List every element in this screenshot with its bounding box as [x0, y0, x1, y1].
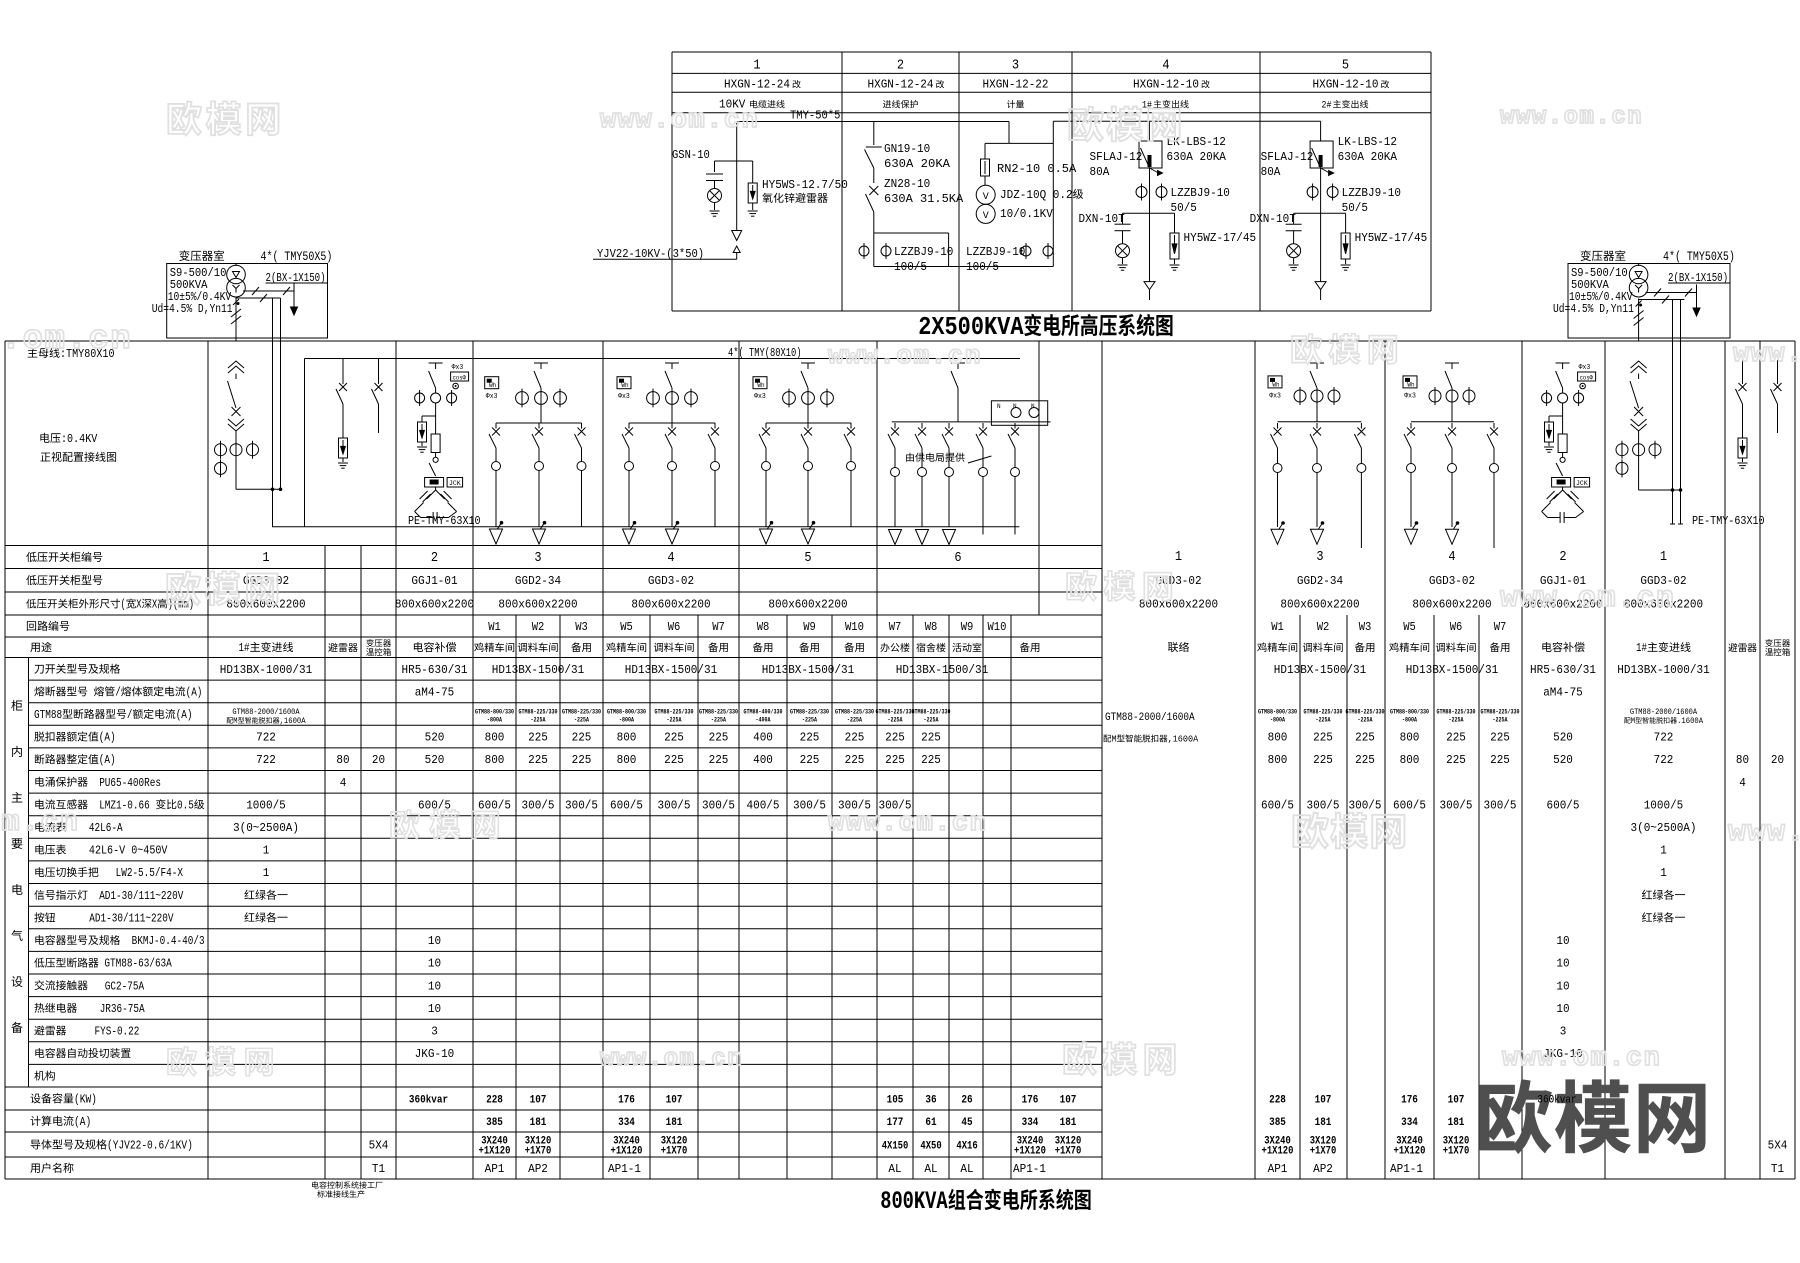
svg-text:10: 10	[428, 1002, 441, 1016]
svg-text:385: 385	[1269, 1117, 1286, 1129]
svg-text:Φx3: Φx3	[452, 364, 464, 372]
svg-text:0.5: 0.5	[177, 798, 194, 812]
svg-text:800x600x2200: 800x600x2200	[1139, 598, 1218, 612]
svg-text:GC2-75A: GC2-75A	[105, 979, 145, 993]
svg-text:W8: W8	[757, 620, 770, 634]
svg-text:2#: 2#	[1322, 101, 1332, 112]
svg-text:3: 3	[1012, 59, 1019, 74]
svg-text:107: 107	[530, 1095, 547, 1107]
svg-text:+1X120: +1X120	[1014, 1146, 1046, 1158]
svg-text:105: 105	[887, 1095, 904, 1107]
svg-text:HXGN-12-10: HXGN-12-10	[1133, 78, 1199, 92]
svg-text:300/5: 300/5	[702, 798, 735, 812]
svg-text:W3: W3	[1359, 620, 1372, 634]
svg-text:V: V	[983, 192, 989, 203]
svg-text:800x600x2200: 800x600x2200	[498, 598, 577, 612]
svg-text:N: N	[1031, 403, 1035, 410]
svg-text:T1: T1	[1771, 1162, 1784, 1176]
svg-text:www.om.cn: www.om.cn	[600, 106, 759, 136]
svg-text:HXGN-12-22: HXGN-12-22	[983, 78, 1049, 92]
svg-text:176: 176	[1401, 1095, 1418, 1107]
svg-text:Φx3: Φx3	[1404, 392, 1416, 400]
svg-text:181: 181	[530, 1117, 547, 1129]
svg-text:20: 20	[1771, 753, 1784, 767]
svg-text:GTM88-225/330: GTM88-225/330	[1304, 709, 1343, 717]
svg-text:722: 722	[256, 731, 276, 745]
svg-text:,1600A: ,1600A	[280, 718, 306, 726]
svg-text:6: 6	[954, 551, 961, 566]
svg-text:225: 225	[800, 753, 820, 767]
svg-text:Wh: Wh	[1272, 381, 1280, 388]
svg-text:BKMJ-0.4-40/3: BKMJ-0.4-40/3	[132, 934, 205, 948]
svg-text:225: 225	[885, 731, 905, 745]
svg-text:-225A: -225A	[1493, 717, 1509, 725]
svg-text:630A 20KA: 630A 20KA	[884, 157, 951, 171]
svg-text:FYS-0.22: FYS-0.22	[95, 1025, 140, 1039]
svg-text:V: V	[983, 211, 989, 222]
svg-text:+1X120: +1X120	[479, 1146, 511, 1158]
svg-text:600/5: 600/5	[610, 798, 643, 812]
svg-text:300/5: 300/5	[565, 798, 598, 812]
svg-text:630A 31.5KA: 630A 31.5KA	[884, 192, 964, 206]
svg-text:800x600x2200: 800x600x2200	[768, 598, 847, 612]
svg-text:225: 225	[1355, 753, 1375, 767]
svg-text:722: 722	[1654, 753, 1674, 767]
svg-text:AP1: AP1	[485, 1162, 505, 1176]
svg-text:4X150: 4X150	[882, 1141, 909, 1153]
svg-text:LMZ1-0.66: LMZ1-0.66	[99, 798, 150, 812]
svg-text:AL: AL	[924, 1162, 937, 1176]
svg-text:100/5: 100/5	[894, 260, 927, 274]
svg-text:45: 45	[961, 1117, 972, 1129]
svg-text:4: 4	[667, 551, 674, 566]
svg-text:107: 107	[666, 1095, 683, 1107]
svg-text:3: 3	[1316, 550, 1323, 565]
svg-text:LZZBJ9-10: LZZBJ9-10	[966, 245, 1025, 259]
svg-text:300/5: 300/5	[1307, 798, 1340, 812]
svg-text:AP1-1: AP1-1	[608, 1162, 641, 1176]
svg-text:-800A: -800A	[1270, 717, 1286, 725]
svg-text:+1X70: +1X70	[661, 1146, 688, 1158]
svg-text:177: 177	[887, 1117, 904, 1129]
svg-text:-225A: -225A	[802, 717, 818, 725]
svg-text:X: X	[136, 598, 141, 612]
svg-text:225: 225	[572, 731, 592, 745]
svg-text:181: 181	[1448, 1117, 1465, 1129]
svg-text:AP1-1: AP1-1	[1390, 1162, 1423, 1176]
svg-text:GGD3-02: GGD3-02	[1429, 574, 1475, 588]
svg-text:AP1-1: AP1-1	[1013, 1162, 1046, 1176]
svg-text:-225A: -225A	[924, 717, 940, 725]
svg-text:www.om.cn: www.om.cn	[1502, 1044, 1661, 1074]
svg-text:LZZBJ9-10: LZZBJ9-10	[894, 245, 953, 259]
svg-text:(A): (A)	[99, 753, 116, 767]
svg-text:225: 225	[709, 731, 729, 745]
svg-text:520: 520	[425, 731, 445, 745]
svg-text:225: 225	[664, 753, 684, 767]
svg-text:10: 10	[428, 979, 441, 993]
svg-text:3: 3	[534, 551, 541, 566]
svg-text:GTM88: GTM88	[34, 708, 62, 722]
svg-text:+1X120: +1X120	[1394, 1146, 1426, 1158]
svg-text:181: 181	[1060, 1117, 1077, 1129]
svg-text:1: 1	[1660, 866, 1667, 880]
svg-text:Wh: Wh	[621, 382, 629, 389]
svg-text:GGD3-02: GGD3-02	[648, 574, 694, 588]
svg-text:225: 225	[1313, 753, 1333, 767]
svg-text:GGD2-34: GGD2-34	[1297, 574, 1343, 588]
svg-text:1: 1	[263, 844, 270, 858]
svg-text:520: 520	[1553, 731, 1573, 745]
svg-text:520: 520	[425, 753, 445, 767]
svg-text:GTM88-225/330: GTM88-225/330	[1346, 709, 1385, 717]
svg-text:SFLAJ-12: SFLAJ-12	[1090, 150, 1143, 164]
svg-text:AP2: AP2	[528, 1162, 548, 1176]
svg-text:-800A: -800A	[1402, 717, 1418, 725]
svg-text:36: 36	[925, 1095, 936, 1107]
svg-text:100/5: 100/5	[966, 260, 999, 274]
svg-text:800: 800	[485, 731, 505, 745]
svg-text:Ud=4.5% D,Yn11: Ud=4.5% D,Yn11	[1553, 302, 1634, 316]
svg-text:T1: T1	[372, 1162, 385, 1176]
svg-text:225: 225	[800, 731, 820, 745]
svg-text:-225A: -225A	[888, 717, 904, 725]
svg-text:AL: AL	[888, 1162, 901, 1176]
svg-text:225: 225	[528, 753, 548, 767]
svg-text:GN19-10: GN19-10	[884, 142, 930, 156]
svg-text:600/5: 600/5	[1393, 798, 1426, 812]
svg-text:600/5: 600/5	[1261, 798, 1294, 812]
svg-text:300/5: 300/5	[1484, 798, 1517, 812]
svg-text:(YJV22-0.6/1KV): (YJV22-0.6/1KV)	[107, 1139, 193, 1153]
svg-text:(KW): (KW)	[74, 1093, 97, 1107]
svg-text:+1X70: +1X70	[1310, 1146, 1337, 1158]
svg-text:-225A: -225A	[574, 717, 590, 725]
svg-text:HD13BX-1500/31: HD13BX-1500/31	[492, 663, 584, 677]
svg-text:HD13BX-1500/31: HD13BX-1500/31	[625, 663, 717, 677]
svg-text:GTM88-800/330: GTM88-800/330	[607, 709, 646, 717]
svg-text:(A): (A)	[99, 731, 116, 745]
svg-text:GSN-10: GSN-10	[672, 148, 710, 162]
svg-text:,1600A: ,1600A	[1168, 734, 1199, 745]
svg-text:/: /	[127, 708, 133, 722]
svg-text:225: 225	[921, 731, 941, 745]
svg-text:M: M	[1631, 718, 1636, 726]
svg-text:www.om.cn: www.om.cn	[0, 806, 80, 840]
svg-text:HXGN-12-24: HXGN-12-24	[724, 78, 790, 92]
svg-text:1: 1	[263, 866, 270, 880]
svg-text:800: 800	[1268, 731, 1288, 745]
svg-text:176: 176	[1022, 1095, 1039, 1107]
svg-text:4*( TMY50X5): 4*( TMY50X5)	[261, 249, 333, 264]
svg-text:225: 225	[1446, 753, 1466, 767]
svg-text:W2: W2	[1317, 620, 1330, 634]
svg-text:GTM88-225/330: GTM88-225/330	[835, 709, 874, 717]
svg-text:GTM88-800/330: GTM88-800/330	[475, 709, 514, 717]
svg-text:TMY-50*5: TMY-50*5	[790, 109, 840, 123]
svg-text:+1X70: +1X70	[1055, 1146, 1082, 1158]
svg-text:10: 10	[1556, 957, 1569, 971]
svg-text:+1X120: +1X120	[611, 1146, 643, 1158]
svg-text:225: 225	[845, 753, 865, 767]
svg-text:GGD2-34: GGD2-34	[515, 574, 561, 588]
svg-text:1: 1	[262, 551, 269, 566]
svg-text:600/5: 600/5	[478, 798, 511, 812]
svg-text:225: 225	[885, 753, 905, 767]
svg-text:1: 1	[753, 59, 760, 74]
svg-text:10: 10	[1556, 1002, 1569, 1016]
svg-text:HD13BX-1000/31: HD13BX-1000/31	[220, 663, 312, 677]
svg-text:Wh: Wh	[489, 382, 497, 389]
svg-text:400/5: 400/5	[747, 798, 780, 812]
svg-text:JCK: JCK	[449, 480, 461, 487]
svg-text:722: 722	[1654, 731, 1674, 745]
svg-text:300/5: 300/5	[522, 798, 555, 812]
svg-text:800x600x2200: 800x600x2200	[1280, 598, 1359, 612]
svg-text:M: M	[233, 718, 238, 726]
svg-text:3: 3	[431, 1025, 438, 1039]
svg-text:JKG-10: JKG-10	[415, 1047, 455, 1061]
svg-text:www.om.cn: www.om.cn	[828, 809, 987, 839]
svg-text:Φx3: Φx3	[618, 393, 630, 401]
svg-text:1: 1	[1660, 550, 1667, 565]
svg-text:26: 26	[961, 1095, 972, 1107]
svg-text:400: 400	[753, 753, 773, 767]
svg-text:107: 107	[1060, 1095, 1077, 1107]
svg-text:225: 225	[528, 731, 548, 745]
svg-text:300/5: 300/5	[1349, 798, 1382, 812]
svg-text:800x600x2200: 800x600x2200	[1412, 598, 1491, 612]
svg-text:GTM88-225/330: GTM88-225/330	[655, 709, 694, 717]
svg-text:W10: W10	[845, 620, 864, 634]
svg-text:W1: W1	[488, 620, 501, 634]
svg-text:W7: W7	[712, 620, 725, 634]
svg-text:800: 800	[1268, 753, 1288, 767]
svg-text:3: 3	[1560, 1025, 1567, 1039]
svg-text:www.om.cn: www.om.cn	[828, 341, 982, 371]
svg-text:GTM88-400/330: GTM88-400/330	[744, 709, 783, 717]
svg-text:-800A: -800A	[619, 717, 635, 725]
svg-text:X: X	[152, 598, 157, 612]
svg-text:W7: W7	[889, 620, 902, 634]
svg-text:HR5-630/31: HR5-630/31	[1530, 663, 1596, 677]
svg-text:N: N	[1013, 403, 1017, 410]
svg-text:4*( TMY50X5): 4*( TMY50X5)	[1663, 249, 1735, 264]
svg-text:.1600A: .1600A	[1677, 718, 1703, 726]
svg-text:225: 225	[1446, 731, 1466, 745]
svg-text:-225A: -225A	[531, 717, 547, 725]
svg-text:Wh: Wh	[1407, 381, 1415, 388]
svg-text:1000/5: 1000/5	[1644, 798, 1684, 812]
svg-text:HD13BX-1500/31: HD13BX-1500/31	[1406, 663, 1498, 677]
svg-text:AD1-30/111~220V: AD1-30/111~220V	[89, 912, 174, 926]
svg-text:80A: 80A	[1261, 165, 1281, 179]
svg-text:385: 385	[486, 1117, 503, 1129]
svg-text:W9: W9	[803, 620, 816, 634]
svg-text:4: 4	[340, 776, 347, 790]
svg-text:5: 5	[804, 551, 811, 566]
svg-text:2X500KVA: 2X500KVA	[918, 312, 1023, 342]
svg-text:LZZBJ9-10: LZZBJ9-10	[1171, 186, 1230, 200]
svg-text:225: 225	[921, 753, 941, 767]
svg-text:2: 2	[897, 59, 904, 74]
svg-text:107: 107	[1448, 1095, 1465, 1107]
svg-text:225: 225	[709, 753, 729, 767]
svg-text:cosΦ: cosΦ	[1580, 375, 1593, 383]
svg-text:4: 4	[1162, 59, 1169, 74]
svg-text:GTM88-2000/1600A: GTM88-2000/1600A	[1630, 709, 1697, 717]
svg-text:GTM88-225/330: GTM88-225/330	[699, 709, 738, 717]
svg-text:AP2: AP2	[1313, 1162, 1333, 1176]
svg-text:3(0~2500A): 3(0~2500A)	[233, 821, 299, 835]
svg-text:4: 4	[1739, 776, 1746, 790]
svg-text:N: N	[997, 403, 1001, 410]
svg-text:800KVA: 800KVA	[880, 1187, 948, 1216]
svg-text:-225A: -225A	[847, 717, 863, 725]
svg-text:Ud=4.5% D,Yn11: Ud=4.5% D,Yn11	[152, 302, 233, 316]
svg-text::0.4KV: :0.4KV	[61, 432, 98, 446]
svg-text:GTM88-225/330: GTM88-225/330	[562, 709, 601, 717]
svg-text:225: 225	[1490, 753, 1510, 767]
svg-text:www.om.cn: www.om.cn	[0, 321, 132, 359]
svg-text:300/5: 300/5	[793, 798, 826, 812]
svg-text:800: 800	[617, 731, 637, 745]
svg-text:225: 225	[1490, 731, 1510, 745]
svg-text:GTM88-225/330: GTM88-225/330	[1481, 709, 1520, 717]
svg-text:20: 20	[372, 753, 385, 767]
svg-text:SFLAJ-12: SFLAJ-12	[1261, 150, 1314, 164]
svg-text:GTM88-63/63A: GTM88-63/63A	[104, 957, 172, 971]
svg-text:3(0~2500A): 3(0~2500A)	[1631, 821, 1697, 835]
svg-text:HY5WS-12.7/50: HY5WS-12.7/50	[762, 178, 848, 192]
svg-text:80: 80	[336, 753, 349, 767]
svg-text:10: 10	[1556, 979, 1569, 993]
svg-text:-800A: -800A	[487, 717, 503, 725]
svg-text:JCK: JCK	[1576, 480, 1588, 487]
svg-text:228: 228	[486, 1095, 503, 1107]
svg-text:GTM88-800/330: GTM88-800/330	[1390, 709, 1429, 717]
svg-text:1#: 1#	[1636, 641, 1647, 655]
svg-text:aM4-75: aM4-75	[415, 685, 455, 699]
svg-text:Wh: Wh	[757, 382, 765, 389]
svg-text:W2: W2	[532, 620, 545, 634]
svg-text:1000/5: 1000/5	[246, 798, 286, 812]
svg-text:Φx3: Φx3	[486, 393, 498, 401]
svg-text:5: 5	[1342, 59, 1349, 74]
svg-text:/: /	[115, 685, 121, 699]
svg-text:300/5: 300/5	[1440, 798, 1473, 812]
svg-text:1: 1	[1660, 844, 1667, 858]
svg-text:LK-LBS-12: LK-LBS-12	[1338, 135, 1397, 149]
svg-text:80A: 80A	[1090, 165, 1110, 179]
svg-text:-225A: -225A	[667, 717, 683, 725]
svg-text:225: 225	[1313, 731, 1333, 745]
svg-text:334: 334	[1022, 1117, 1039, 1129]
svg-text:(A): (A)	[186, 685, 203, 699]
svg-text:(A): (A)	[176, 708, 193, 722]
svg-text:300/5: 300/5	[658, 798, 691, 812]
svg-text:225: 225	[664, 731, 684, 745]
svg-text:61: 61	[925, 1117, 936, 1129]
svg-text:800: 800	[617, 753, 637, 767]
svg-text:10: 10	[1556, 934, 1569, 948]
svg-text:W7: W7	[1494, 620, 1507, 634]
svg-text:630A 20KA: 630A 20KA	[1338, 150, 1398, 164]
svg-text:W10: W10	[988, 620, 1007, 634]
svg-text:4: 4	[1448, 550, 1455, 565]
svg-text:W8: W8	[925, 620, 938, 634]
svg-text:(A): (A)	[74, 1115, 91, 1129]
svg-text:W3: W3	[575, 620, 588, 634]
svg-text:225: 225	[1355, 731, 1375, 745]
svg-text:www.om.cn: www.om.cn	[1500, 582, 1676, 616]
svg-text:600/5: 600/5	[1547, 798, 1580, 812]
svg-text:M: M	[1112, 734, 1117, 745]
svg-text:800: 800	[1400, 731, 1420, 745]
svg-text:GTM88-225/330: GTM88-225/330	[876, 709, 915, 717]
svg-text:AL: AL	[960, 1162, 973, 1176]
svg-text:-400A: -400A	[756, 717, 772, 725]
svg-text:-225A: -225A	[711, 717, 727, 725]
svg-text:334: 334	[1401, 1117, 1418, 1129]
svg-text:722: 722	[256, 753, 276, 767]
svg-text:2: 2	[1559, 550, 1566, 565]
svg-text:42L6-V 0~450V: 42L6-V 0~450V	[89, 844, 168, 858]
svg-text:HXGN-12-10: HXGN-12-10	[1313, 78, 1379, 92]
svg-text:W6: W6	[668, 620, 681, 634]
svg-text:520: 520	[1553, 753, 1573, 767]
svg-text:800x600x2200: 800x600x2200	[395, 598, 474, 612]
svg-text:W9: W9	[961, 620, 974, 634]
svg-text:4*( TMY(80X10): 4*( TMY(80X10)	[728, 346, 802, 360]
svg-text:GTM88-225/330: GTM88-225/330	[790, 709, 829, 717]
svg-text:HD13BX-1500/31: HD13BX-1500/31	[896, 663, 988, 677]
svg-text:80: 80	[1736, 753, 1749, 767]
svg-text:334: 334	[618, 1117, 635, 1129]
svg-text:JDZ-10Q 0.2: JDZ-10Q 0.2	[1000, 188, 1073, 202]
svg-text:360kvar: 360kvar	[409, 1095, 448, 1107]
svg-text:GTM88-225/330: GTM88-225/330	[912, 709, 951, 717]
svg-text:GGD3-02: GGD3-02	[243, 574, 289, 588]
svg-text:W5: W5	[620, 620, 633, 634]
svg-text:PE-TMY-63X10: PE-TMY-63X10	[1692, 514, 1765, 528]
svg-text:HD13BX-1500/31: HD13BX-1500/31	[762, 663, 854, 677]
svg-text:10: 10	[428, 957, 441, 971]
svg-text:www.om.cn: www.om.cn	[1733, 340, 1800, 370]
svg-text:5X4: 5X4	[1768, 1139, 1788, 1153]
svg-text:GTM88-800/330: GTM88-800/330	[1258, 709, 1297, 717]
svg-text:2: 2	[431, 551, 438, 566]
svg-text:1: 1	[1175, 550, 1182, 565]
svg-text:176: 176	[618, 1095, 635, 1107]
svg-text:181: 181	[1315, 1117, 1332, 1129]
svg-text:-225A: -225A	[1449, 717, 1465, 725]
svg-text:5X4: 5X4	[369, 1139, 389, 1153]
svg-text:HD13BX-1500/31: HD13BX-1500/31	[1274, 663, 1366, 677]
svg-text:42L6-A: 42L6-A	[89, 821, 123, 835]
svg-text:GTM88-2000/1600A: GTM88-2000/1600A	[1105, 712, 1195, 724]
svg-text:GTM88-225/330: GTM88-225/330	[519, 709, 558, 717]
svg-text:GGJ1-01: GGJ1-01	[411, 574, 457, 588]
svg-text:HXGN-12-24: HXGN-12-24	[868, 78, 934, 92]
svg-text:W5: W5	[1403, 620, 1416, 634]
svg-text:GTM88-2000/1600A: GTM88-2000/1600A	[232, 709, 299, 717]
svg-text:228: 228	[1269, 1095, 1286, 1107]
svg-text:HR5-630/31: HR5-630/31	[402, 663, 468, 677]
svg-text:(: (	[121, 598, 126, 612]
svg-text:1#: 1#	[239, 641, 250, 655]
svg-text:www.om.cn: www.om.cn	[600, 1046, 743, 1073]
